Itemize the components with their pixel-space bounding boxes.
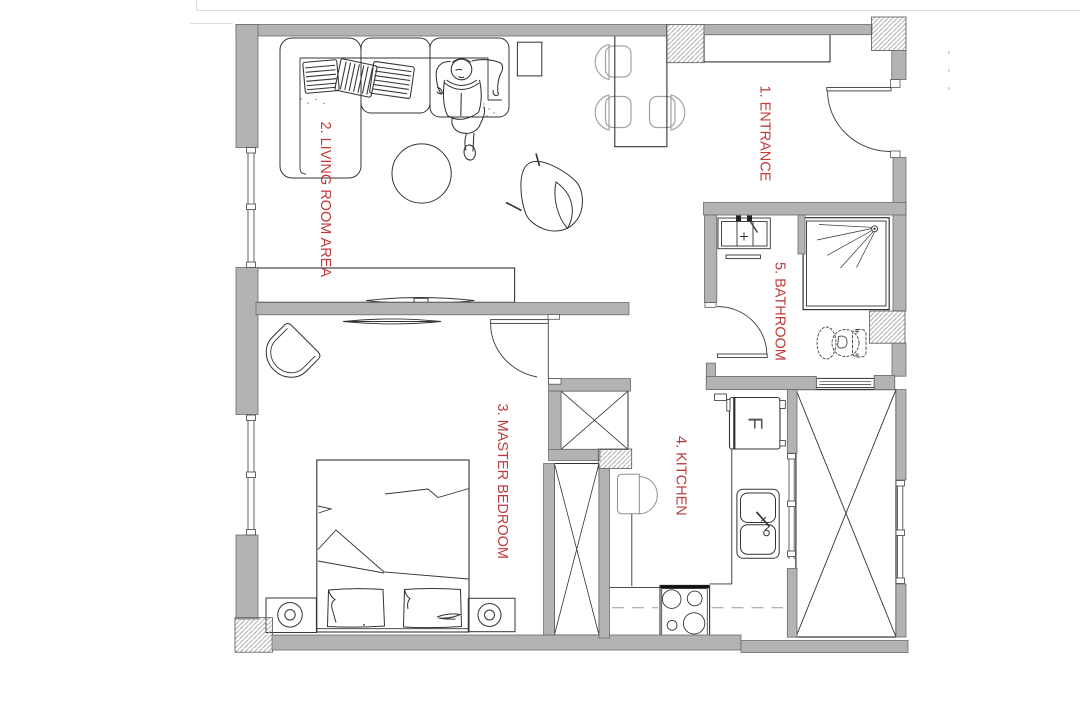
svg-text:2. LIVING ROOM AREA: 2. LIVING ROOM AREA	[317, 122, 333, 278]
svg-text:4. KITCHEN: 4. KITCHEN	[673, 436, 689, 516]
svg-text:1. ENTRANCE: 1. ENTRANCE	[757, 86, 773, 182]
svg-text:F: F	[744, 417, 767, 430]
svg-text:5. BATHROOM: 5. BATHROOM	[772, 262, 788, 361]
svg-text:3. MASTER BEDROOM: 3. MASTER BEDROOM	[494, 404, 510, 560]
